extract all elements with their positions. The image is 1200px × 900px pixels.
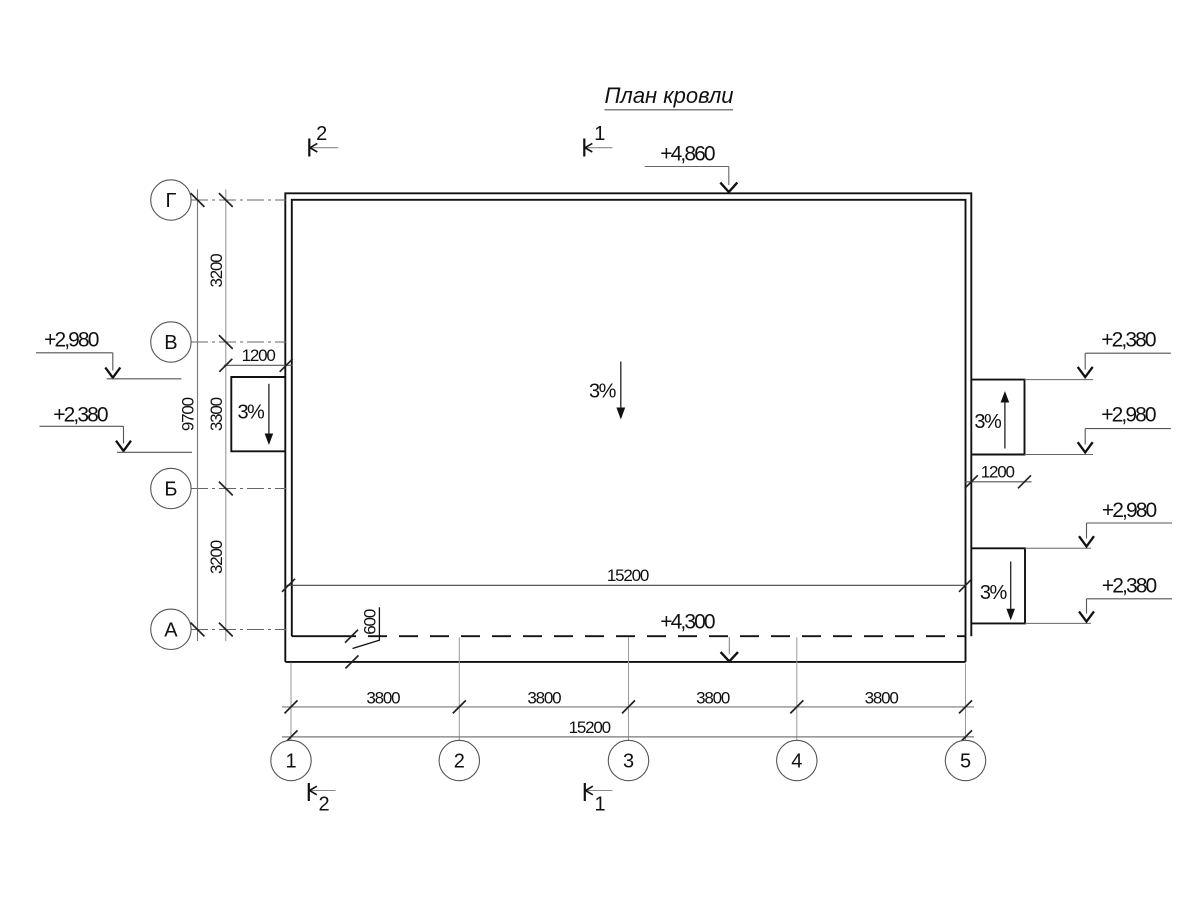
svg-text:1200: 1200 (981, 463, 1015, 482)
svg-text:Б: Б (164, 479, 177, 501)
svg-text:+2,380: +2,380 (1102, 575, 1157, 598)
svg-text:3800: 3800 (366, 689, 400, 708)
svg-text:5: 5 (960, 751, 971, 773)
svg-text:+2,980: +2,980 (1101, 404, 1156, 427)
svg-text:3%: 3% (237, 401, 265, 423)
svg-text:Г: Г (165, 190, 176, 212)
svg-text:2: 2 (318, 794, 329, 816)
svg-text:15200: 15200 (607, 566, 649, 585)
svg-text:3200: 3200 (207, 540, 226, 574)
svg-text:2: 2 (316, 123, 327, 145)
svg-text:3800: 3800 (527, 689, 561, 708)
svg-text:3%: 3% (974, 411, 1002, 433)
svg-text:+2,380: +2,380 (53, 403, 108, 426)
svg-text:3800: 3800 (865, 689, 899, 708)
svg-text:В: В (164, 332, 177, 354)
svg-text:1: 1 (594, 123, 605, 145)
svg-text:+4,300: +4,300 (660, 611, 715, 634)
svg-text:1: 1 (594, 794, 605, 816)
svg-text:3%: 3% (589, 380, 617, 402)
svg-text:+2,980: +2,980 (44, 328, 99, 351)
svg-text:3%: 3% (980, 582, 1008, 604)
svg-text:15200: 15200 (569, 718, 611, 737)
svg-text:600: 600 (360, 609, 379, 635)
svg-text:3200: 3200 (207, 254, 226, 288)
svg-text:2: 2 (454, 751, 465, 773)
svg-text:+4,860: +4,860 (660, 142, 715, 165)
svg-text:9700: 9700 (179, 397, 198, 431)
svg-text:3: 3 (623, 751, 634, 773)
svg-text:План кровли: План кровли (604, 83, 733, 108)
svg-text:3300: 3300 (207, 397, 226, 431)
svg-text:4: 4 (791, 751, 802, 773)
svg-text:3800: 3800 (696, 689, 730, 708)
svg-text:1: 1 (285, 751, 296, 773)
svg-text:+2,380: +2,380 (1101, 328, 1156, 351)
svg-text:+2,980: +2,980 (1102, 499, 1157, 522)
svg-text:А: А (164, 619, 178, 641)
svg-text:1200: 1200 (242, 346, 276, 365)
